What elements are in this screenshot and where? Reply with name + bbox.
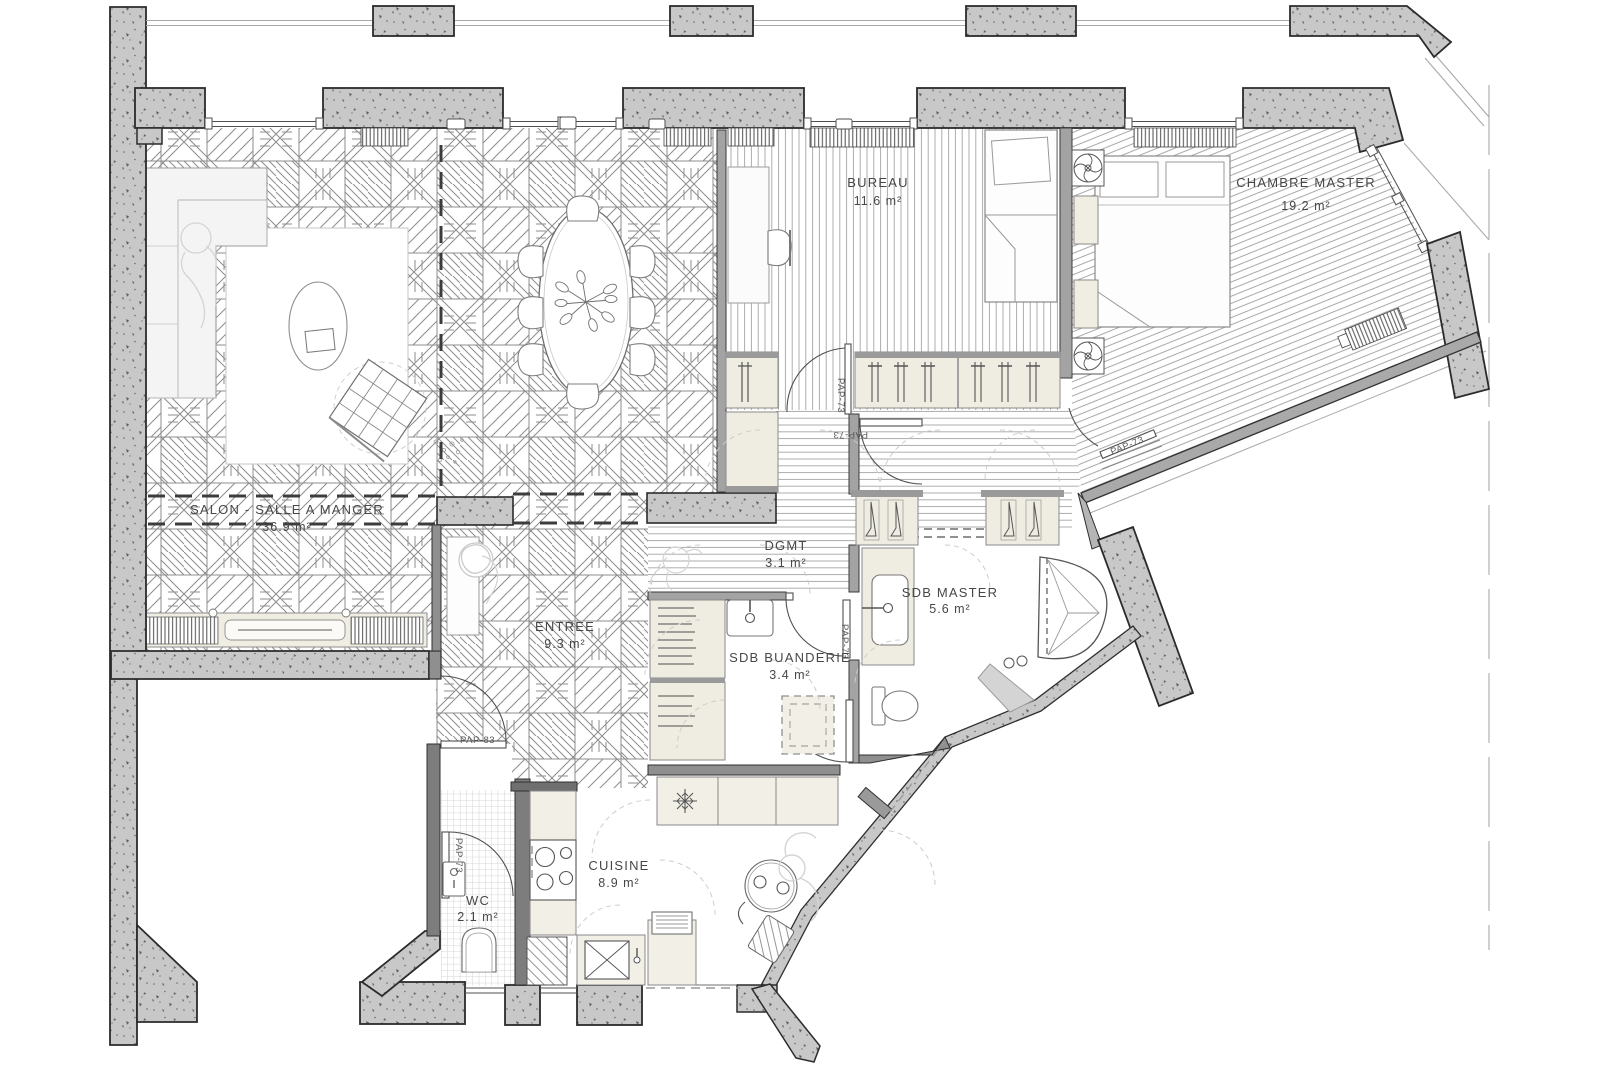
svg-text:PAP-83: PAP-83 <box>460 735 495 746</box>
svg-text:2.1 m²: 2.1 m² <box>457 910 498 924</box>
svg-text:CUISINE: CUISINE <box>588 858 649 873</box>
svg-text:CHAMBRE MASTER: CHAMBRE MASTER <box>1236 175 1376 190</box>
svg-text:WC: WC <box>466 893 490 908</box>
svg-text:19.2 m²: 19.2 m² <box>1281 199 1330 213</box>
svg-text:36.9 m²: 36.9 m² <box>262 520 311 534</box>
svg-text:11.6 m²: 11.6 m² <box>854 194 902 208</box>
svg-text:9.3 m²: 9.3 m² <box>544 637 585 651</box>
svg-text:PAP-73: PAP-73 <box>833 429 868 440</box>
svg-text:8.9 m²: 8.9 m² <box>598 876 639 890</box>
svg-text:PAP-73: PAP-73 <box>835 378 846 413</box>
svg-text:DGMT: DGMT <box>764 538 807 553</box>
svg-text:5.6 m²: 5.6 m² <box>929 602 970 616</box>
svg-text:3.4 m²: 3.4 m² <box>769 668 810 682</box>
svg-text:3.1 m²: 3.1 m² <box>765 556 806 570</box>
svg-text:SALON - SALLE A MANGER: SALON - SALLE A MANGER <box>190 502 384 517</box>
svg-text:PAP-73: PAP-73 <box>453 838 464 873</box>
svg-text:ENTREE: ENTREE <box>535 619 595 634</box>
svg-text:SDB MASTER: SDB MASTER <box>902 585 999 600</box>
svg-text:SDB BUANDERIE: SDB BUANDERIE <box>729 650 851 665</box>
svg-text:PAP-73: PAP-73 <box>839 624 850 659</box>
svg-text:BUREAU: BUREAU <box>847 175 908 190</box>
